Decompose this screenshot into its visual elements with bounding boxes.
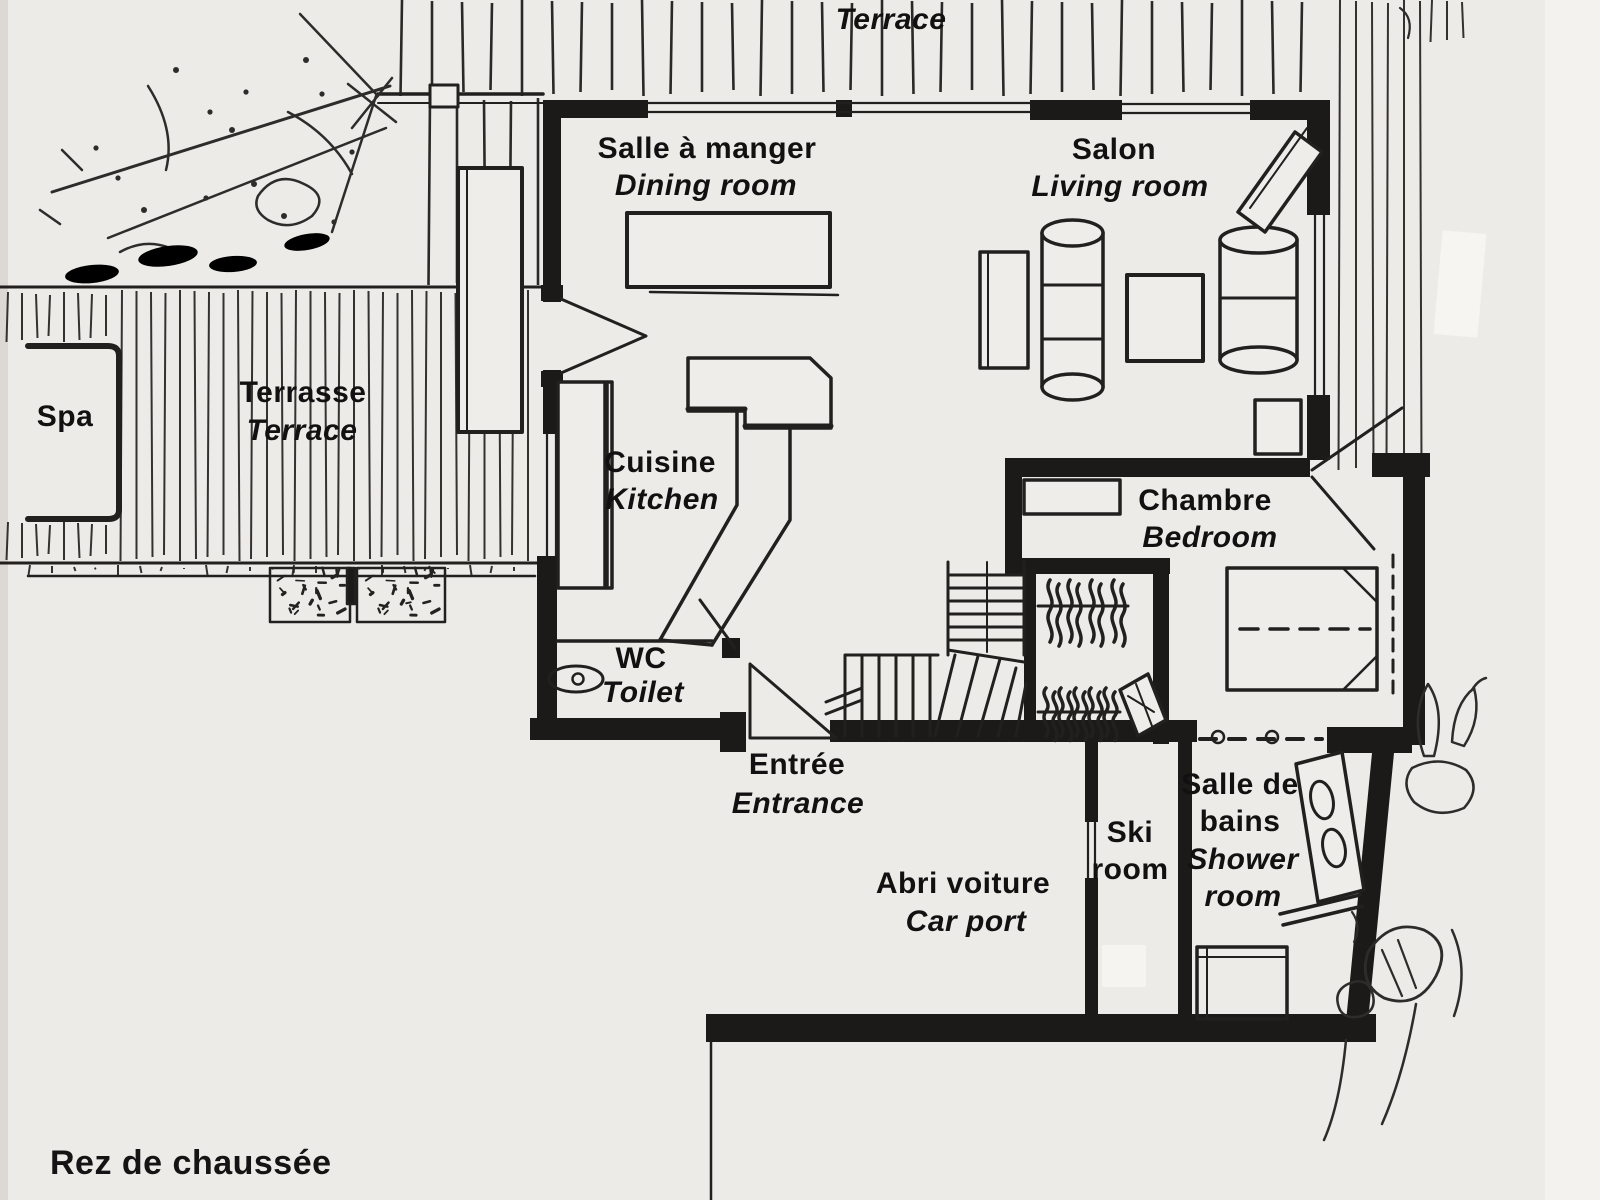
label-kitchen-en: Kitchen <box>605 481 719 518</box>
cabinet <box>1255 400 1301 454</box>
bedroom-door <box>1312 477 1374 549</box>
page-title: Rez de chaussée <box>50 1144 332 1183</box>
label-dining-fr: Salle à manger <box>598 130 817 167</box>
spa-upper-deck-ticks <box>7 292 107 342</box>
label-kitchen-fr: Cuisine <box>604 444 716 481</box>
rock-sketch <box>40 14 396 286</box>
paver-speckle-2 <box>366 567 439 616</box>
label-terrace-top: Terrace <box>836 1 947 38</box>
label-wc-en: Toilet <box>602 674 684 711</box>
label-shower-en: Shower room <box>1168 841 1318 915</box>
label-entrance-en: Entrance <box>732 785 864 822</box>
dining-terrace-door <box>561 299 646 373</box>
label-shower-fr: Salle de bains <box>1154 766 1326 840</box>
label-entrance-fr: Entrée <box>749 746 845 783</box>
northeast-corner-hatching <box>1431 0 1464 42</box>
staircase <box>826 562 1026 736</box>
label-terrasse-fr: Terrasse <box>240 374 367 411</box>
label-carport-en: Car port <box>906 903 1027 940</box>
label-bedroom-en: Bedroom <box>1142 519 1277 556</box>
label-wc-fr: WC <box>616 640 667 677</box>
floor-plan-page: Terrace Salle à manger Dining room Salon… <box>0 0 1600 1200</box>
dresser <box>1024 480 1120 514</box>
label-bedroom-fr: Chambre <box>1138 482 1272 519</box>
dining-table <box>627 213 838 295</box>
floor-plan-drawing <box>0 0 1600 1200</box>
closet-hangers-upper <box>1048 580 1125 646</box>
paper-scratch-2 <box>1102 945 1146 987</box>
label-carport-fr: Abri voiture <box>876 865 1050 902</box>
label-living-fr: Salon <box>1072 131 1156 168</box>
terrace-bench <box>458 168 522 432</box>
label-spa: Spa <box>37 398 94 435</box>
paper-scratch <box>1434 230 1487 337</box>
spa-lower-deck-ticks <box>7 522 107 560</box>
sofa-right <box>1220 227 1297 373</box>
paper-edge-shadow <box>0 0 8 1200</box>
label-terrasse-en: Terrace <box>247 412 358 449</box>
shower-room-opening <box>1200 731 1322 743</box>
paper-edge-light <box>1545 0 1600 1200</box>
label-living-en: Living room <box>1031 168 1208 205</box>
terrace-rail-post <box>430 85 458 107</box>
rock-sketch-dots <box>93 57 354 225</box>
east-deck-hatching <box>1339 0 1422 470</box>
coffee-table <box>1127 275 1203 361</box>
toilet-icon <box>549 666 603 692</box>
sofa-left <box>1042 220 1103 400</box>
label-dining-en: Dining room <box>615 167 797 204</box>
entrance-door <box>750 664 836 738</box>
bed <box>1227 568 1377 690</box>
